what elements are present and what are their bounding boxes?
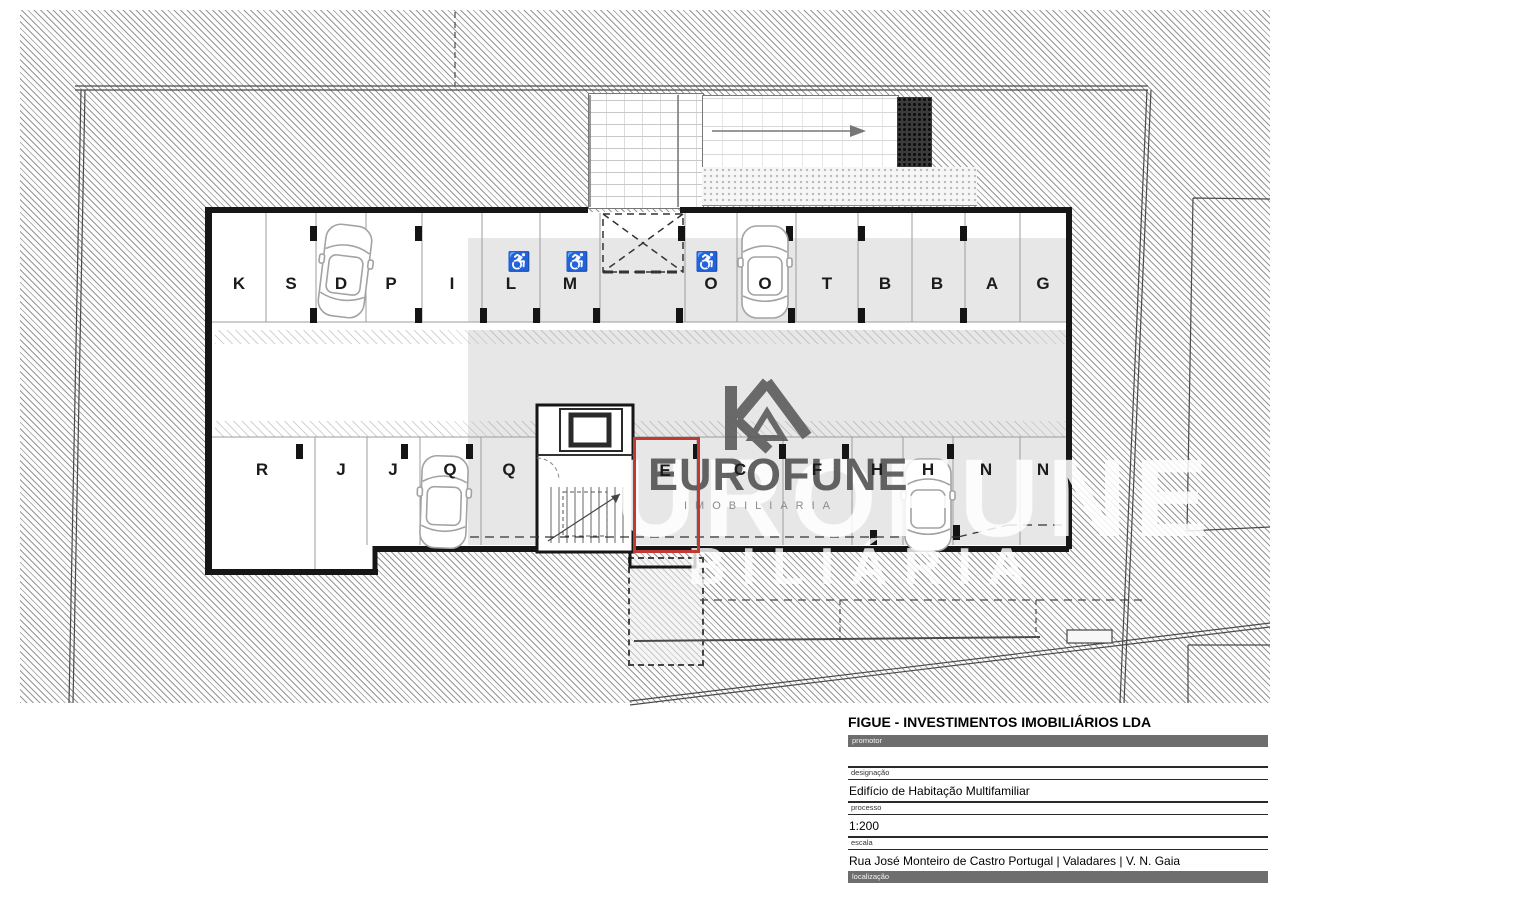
stall-label-bottom: J — [336, 460, 345, 480]
elevator-void-box — [603, 214, 683, 272]
stall-label-top: O — [704, 274, 717, 294]
stall-label-top: S — [285, 274, 296, 294]
stall-label-highlighted: E — [659, 461, 670, 481]
watermark-subtitle-text: IMOBILIARIA — [684, 501, 838, 512]
stall-label-bottom: R — [256, 460, 268, 480]
stall-label-top: B — [931, 274, 943, 294]
stall-label-top: G — [1036, 274, 1049, 294]
ramp-direction-arrow — [712, 125, 866, 137]
stall-label-top: D — [335, 274, 347, 294]
car-icon — [313, 222, 378, 320]
blueprint-canvas: UROFUNE BILIÁRIA EUROFUNE IMOBILIARIA ♿ … — [0, 0, 1525, 897]
stall-label-bottom: F — [812, 460, 822, 480]
stall-label-top: M — [563, 274, 577, 294]
field-label-processo: processo — [848, 801, 1268, 815]
field-value-designacao: Edifício de Habitação Multifamiliar — [848, 780, 1268, 801]
field-label-designacao: designação — [848, 766, 1268, 780]
stall-label-bottom: J — [388, 460, 397, 480]
stall-label-bottom: H — [922, 460, 934, 480]
stall-label-top: P — [385, 274, 396, 294]
watermark-large-subtext: BILIÁRIA — [688, 541, 1041, 593]
stall-label-top: B — [879, 274, 891, 294]
field-label-localizacao: localização — [848, 871, 1268, 883]
title-block-company: FIGUE - INVESTIMENTOS IMOBILIÁRIOS LDA — [848, 712, 1268, 735]
wheelchair-icon: ♿ — [507, 250, 531, 274]
title-block: FIGUE - INVESTIMENTOS IMOBILIÁRIOS LDA p… — [848, 712, 1268, 883]
eurofune-house-logo-icon — [695, 372, 825, 457]
field-value-promotor — [848, 747, 1268, 766]
wheelchair-icon: ♿ — [695, 250, 719, 274]
stall-label-bottom: H — [871, 460, 883, 480]
field-value-escala: Rua José Monteiro de Castro Portugal | V… — [848, 850, 1268, 871]
wheelchair-icon: ♿ — [565, 250, 589, 274]
site-boundary-lines — [69, 12, 1270, 705]
stall-label-bottom: Q — [443, 460, 456, 480]
stall-label-bottom: N — [1037, 460, 1049, 480]
stall-label-top: I — [450, 274, 455, 294]
field-value-processo: 1:200 — [848, 815, 1268, 836]
stall-label-bottom: C — [734, 460, 746, 480]
field-label-promotor: promotor — [848, 735, 1268, 747]
stall-label-bottom: N — [980, 460, 992, 480]
field-label-escala: escala — [848, 836, 1268, 850]
stall-label-top: L — [506, 274, 516, 294]
car-icon — [738, 226, 792, 318]
stall-label-bottom: Q — [502, 460, 515, 480]
stall-label-top: A — [986, 274, 998, 294]
stall-label-top: T — [822, 274, 832, 294]
stall-label-top: K — [233, 274, 245, 294]
stall-label-top: O — [758, 274, 771, 294]
highlighted-stall-box — [633, 437, 700, 553]
